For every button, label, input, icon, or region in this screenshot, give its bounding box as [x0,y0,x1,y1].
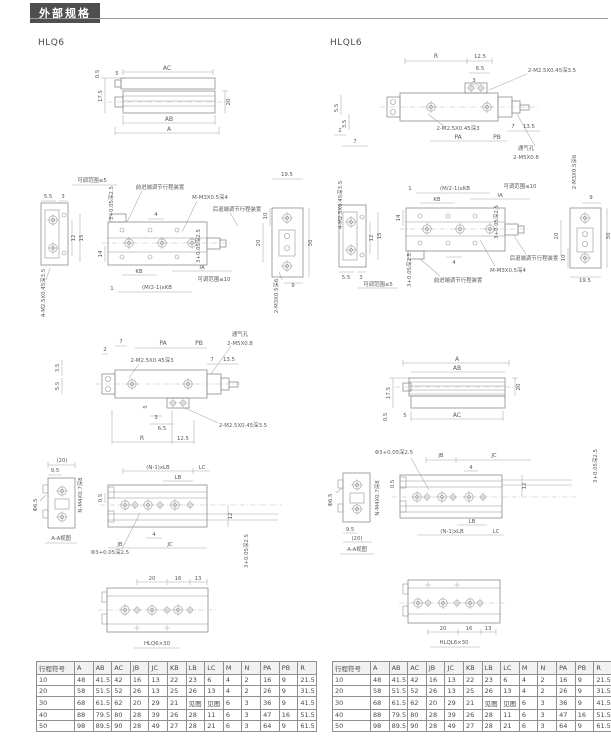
table-cell: 42 [408,675,427,686]
tolerance-label: 3+0.05深2.5 [194,229,202,263]
aa-view-linework [336,457,576,554]
vent-label: 通气孔 [518,144,535,152]
tolerance-label: 3+0.05深2.5 [405,253,413,287]
table-cell: 30 [37,697,75,710]
table-cell: 39 [149,710,168,721]
table-cell: 36 [261,697,280,710]
tolerance-label: 3+0.05深2.5 [492,205,500,239]
table-cell: 58 [75,686,94,697]
table-cell: 61.5 [594,721,611,732]
table-cell: 13 [445,686,464,697]
table-cell: 9 [279,686,298,697]
column-header: M [223,662,242,675]
fwd-adjuster-label: 前进端调节行程装置 [434,276,483,284]
table-cell: 64 [261,721,280,732]
table-cell: 28 [482,710,501,721]
table-cell: 20 [333,686,371,697]
dim-jb: JB [116,542,123,548]
table-cell: 11 [501,710,520,721]
table-cell: 52 [112,686,131,697]
table-cell: 13 [445,675,464,686]
table-cell: 28 [186,710,205,721]
table-cell: 21 [168,697,187,710]
view-caption: A-A视图 [347,545,367,553]
table-cell: 48 [75,675,94,686]
table-cell: 20 [37,686,75,697]
dim-15: 15 [79,235,85,242]
drawing-hlql6-plan-view: 4-M2.5X0.45深3.5 12 15 5.5 3 可调范围≤5 1 (M/… [330,180,610,315]
dim-20: 20 [149,576,156,582]
table-cell: 见图 [205,697,224,710]
table-cell: 13 [149,675,168,686]
dowel-callout: Φ3+0.05深2.5 [375,448,413,456]
table-cell: 61.5 [93,697,112,710]
table-cell: 41.5 [389,675,408,686]
dim-r: R [140,435,144,442]
table-cell: 2 [242,686,261,697]
dim-12-5: 12.5 [474,54,486,60]
column-header: AB [93,662,112,675]
table-cell: 48 [371,675,390,686]
dim-16: 16 [175,576,182,582]
header-rule [30,18,608,19]
dim-5-5: 5.5 [55,382,61,391]
dim-jc: JC [166,542,173,548]
table-cell: 89.5 [389,721,408,732]
dim-7: 7 [119,339,122,345]
dim-lb: LB [175,475,182,481]
dim-nlb: (N-1)xLB [440,529,464,535]
table-cell: 51.5 [298,710,317,721]
table-cell: 13 [205,686,224,697]
table-cell: 27 [168,721,187,732]
plan-view-linework [339,193,607,288]
table-cell: 88 [75,710,94,721]
column-header: R [298,662,317,675]
dim-mkb: (M/2-1)xKB [440,186,470,192]
table-row: 205851.55226132526134226931.5 [37,686,317,697]
table-cell: 9 [575,686,594,697]
table-cell: 28 [482,721,501,732]
dim-ia: IA [497,193,503,199]
table-cell: 23 [186,675,205,686]
dim-1: 1 [408,186,411,192]
table-cell: 26 [186,686,205,697]
table-cell: 11 [205,710,224,721]
table-cell: 2 [242,675,261,686]
dim-2: 2 [103,347,106,353]
table-cell: 23 [482,675,501,686]
column-header: LB [186,662,205,675]
detail-linework [399,580,508,647]
table-cell: 26 [168,710,187,721]
table-cell: 61.5 [298,721,317,732]
table-cell: 16 [426,675,445,686]
table-row: 306861.562202921见图见图6336941.5 [333,697,611,710]
dim-12: 12 [369,235,375,242]
dim-4: 4 [152,532,156,538]
dim-7: 7 [210,357,213,363]
dim-20: 20 [226,98,232,105]
table-cell: 49 [149,721,168,732]
thread-callout: 2-M3X0.5深6 [570,154,578,189]
detail-caption: HLQ6×30 [144,641,171,647]
thread-callout: 4-M2.5X0.45深3.5 [39,269,47,317]
adjust-range-10: 可调范围≤10 [198,275,232,283]
table-cell: 26 [557,686,576,697]
dim-7: 7 [511,124,514,130]
table-cell: 47 [557,710,576,721]
table-cell: 2 [538,675,557,686]
dim-13-5: 13.5 [523,124,535,130]
column-header: KB [168,662,187,675]
table-cell: 16 [575,710,594,721]
dim-19-5: 19.5 [281,172,293,178]
table-cell: 2 [538,686,557,697]
dim-12: 12 [522,483,528,490]
table-cell: 见图 [186,697,205,710]
column-header: LC [205,662,224,675]
table-cell: 40 [37,710,75,721]
table-cell: 27 [464,721,483,732]
table-row: 408879.580283926281163471651.5 [333,710,611,721]
table-cell: 28 [426,710,445,721]
table-cell: 6 [519,710,538,721]
dim-12-5: 12.5 [177,436,189,442]
dim-15: 15 [377,233,383,240]
column-header: A [75,662,94,675]
table-cell: 6 [519,721,538,732]
table-cell: 28 [130,721,149,732]
rear-adjuster-label: 后退端调节行程装置 [510,254,559,262]
dim-20p: (20) [56,458,67,464]
table-cell: 31.5 [298,686,317,697]
table-cell: 79.5 [93,710,112,721]
table-cell: 58 [371,686,390,697]
dim-0-5: 0.5 [390,480,396,489]
table-cell: 28 [426,721,445,732]
tolerance-label: 3+0.05深2.5 [591,449,599,483]
dim-30: 30 [308,239,314,246]
dim-17-5: 17.5 [386,387,392,399]
table-row: 205851.55226132526134226931.5 [333,686,611,697]
detail-linework [98,579,216,648]
table-cell: 6 [519,697,538,710]
dim-3: 3 [472,78,475,84]
dim-20p: (20) [351,536,362,542]
dim-4: 4 [154,212,158,218]
drawing-hlql6-aa-view: Φ3+0.05深2.5 JB JC 4 3+0.05深2.5 0.5 12 LB… [326,438,611,580]
dim-16: 16 [466,626,473,632]
detail-caption: HLQL6×30 [439,640,469,646]
table-cell: 3 [242,710,261,721]
table-cell: 9 [279,697,298,710]
drawing-hlq6-plan-view: 5.5 3 12 15 4-M2.5X0.45深3.5 可调范围≤5 前进端调节… [32,168,312,323]
dim-17-5: 17.5 [98,90,104,102]
thread-callout: 2-M2.5X0.45深3.5 [528,66,576,74]
thread-callout: 4-M2.5X0.45深3.5 [336,181,344,229]
table-row: 509889.59028492728216364961.5 [37,721,317,732]
dim-9: 9 [589,195,593,201]
table-cell: 28 [186,721,205,732]
table-cell: 13 [501,686,520,697]
table-cell: 20 [130,697,149,710]
adjust-range-5: 可调范围≤5 [77,176,107,184]
table-cell: 22 [168,675,187,686]
table-cell: 4 [519,686,538,697]
table-cell: 36 [557,697,576,710]
table-cell: 51.5 [389,686,408,697]
dim-nlb: (N-1)xLB [146,465,170,471]
column-header: JC [149,662,168,675]
dim-5-5: 5.5 [342,275,351,281]
dim-kb: KB [433,197,441,203]
thread-callout: 2-M2.5X0.45深3 [436,124,479,132]
dim-lb: LB [469,519,476,525]
dim-a: A [455,356,460,363]
table-cell: 62 [408,697,427,710]
column-header: N [242,662,261,675]
table-cell: 51.5 [594,710,611,721]
drawing-hlq6-side-view: AC 5 0.5 17.5 20 AB A [95,62,255,142]
table-cell: 6 [223,697,242,710]
table-cell: 25 [464,686,483,697]
table-cell: 80 [112,710,131,721]
adjust-range-5: 可调范围≤5 [363,280,393,288]
table-cell: 39 [445,710,464,721]
dim-4: 4 [452,260,456,266]
column-header: JB [130,662,149,675]
drawing-hlql6-front-view: R 12.5 6.5 3 2-M2.5X0.45深3.5 5.5 3.5 2 7… [330,46,608,171]
column-header: N [538,662,557,675]
dim-9-5: 9.5 [346,527,355,533]
dim-1: 1 [110,286,113,292]
dim-20: 20 [554,232,560,239]
table-cell: 4 [223,686,242,697]
table-cell: 50 [333,721,371,732]
drawing-hlq6x30-detail: 20 16 13 HLQ6×30 [90,572,255,654]
table-cell: 41.5 [594,697,611,710]
dimension-table-hlq6: 行程符号AABACJBJCKBLBLCMNPAPBR104841.5421613… [36,661,317,732]
table-cell: 22 [464,675,483,686]
table-cell: 47 [261,710,280,721]
column-header: LB [482,662,501,675]
table-cell: 40 [333,710,371,721]
dim-ia: IA [199,265,205,271]
dim-10: 10 [263,212,269,219]
fwd-adjuster-label: 前进端调节行程装置 [136,183,185,191]
dim-0-5: 0.5 [98,494,104,503]
dim-6-5: 6.5 [158,426,167,432]
dim-mkb: (M/2-1)xKB [142,285,172,291]
table-cell: 9 [575,721,594,732]
dim-7: 7 [353,139,356,145]
dim-pb: PB [493,134,501,141]
column-header: PA [557,662,576,675]
table-cell: 26 [426,686,445,697]
table-cell: 9 [279,675,298,686]
table-cell: 28 [130,710,149,721]
dim-14: 14 [98,250,104,257]
table-cell: 79.5 [389,710,408,721]
model-label-hlq6: HLQ6 [38,38,65,48]
table-cell: 50 [37,721,75,732]
dim-13: 13 [195,576,202,582]
column-header: 行程符号 [333,662,371,675]
dim-6-5: 6.5 [476,66,485,72]
table-cell: 9 [279,721,298,732]
table-cell: 98 [371,721,390,732]
table-cell: 3 [242,721,261,732]
table-cell: 6 [223,710,242,721]
thread-callout: N-M4X0.7深8 [76,477,84,513]
column-header: JB [426,662,445,675]
table-cell: 52 [408,686,427,697]
dim-13-5: 13.5 [223,357,235,363]
rear-adjuster-label: 后退端调节行程装置 [213,205,262,213]
table-cell: 89.5 [93,721,112,732]
column-header: LC [501,662,520,675]
table-cell: 80 [408,710,427,721]
thread-callout: M-M3X0.5深4 [192,193,228,201]
table-cell: 90 [112,721,131,732]
dim-3-5: 3.5 [342,120,348,129]
dim-5: 5 [115,71,118,77]
dim-10: 10 [561,254,567,261]
drawing-hlq6-aa-view: (20) 9.5 Φ6.5 N-M4X0.7深8 A-A视图 Φ3+0.05深2… [32,443,312,583]
table-cell: 26 [261,686,280,697]
table-row: 408879.580283926281163471651.5 [37,710,317,721]
dim-5: 5 [143,405,149,408]
table-cell: 3 [538,721,557,732]
dim-5: 5 [403,413,406,419]
table-cell: 26 [482,686,501,697]
adjust-range-10: 可调范围≤10 [504,182,538,190]
dim-0-5: 0.5 [95,70,101,79]
dim-ac: AC [453,412,461,419]
view-caption: A-A视图 [51,534,71,542]
dim-pa: PA [454,134,462,141]
dim-ab: AB [165,116,173,123]
column-header: PA [261,662,280,675]
dim-lc: LC [493,529,500,535]
column-header: AB [389,662,408,675]
table-cell: 29 [149,697,168,710]
dim-3: 3 [61,194,64,200]
dim-5-5: 5.5 [44,194,53,200]
dowel-callout: Φ3+0.05深2.5 [91,548,129,556]
dim-5-5: 5.5 [334,104,340,113]
table-cell: 98 [75,721,94,732]
dim-pb: PB [195,340,203,347]
dim-9-5: 9.5 [51,468,60,474]
dim-2: 2 [338,128,341,134]
table-cell: 41.5 [298,697,317,710]
table-cell: 4 [223,675,242,686]
table-row: 104841.5421613222364216921.5 [333,675,611,686]
table-cell: 21 [501,721,520,732]
column-header: AC [408,662,427,675]
tolerance-label: 3+0.05深2.5 [107,186,115,220]
table-cell: 25 [168,686,187,697]
dim-20: 20 [440,626,447,632]
dim-jb: JB [437,453,444,459]
table-cell: 68 [371,697,390,710]
table-cell: 见图 [501,697,520,710]
dim-0-5: 0.5 [383,413,389,422]
dimension-table-hlql6: 行程符号AABACJBJCKBLBLCMNPAPBR104841.5421613… [332,661,611,732]
column-header: M [519,662,538,675]
table-cell: 29 [445,697,464,710]
dim-20: 20 [256,239,262,246]
dim-3: 3 [359,275,362,281]
column-header: JC [445,662,464,675]
dim-kb: KB [135,269,143,275]
table-cell: 42 [112,675,131,686]
table-cell: 88 [371,710,390,721]
column-header: A [371,662,390,675]
dim-13: 13 [485,626,492,632]
vent-label: 通气孔 [232,330,249,338]
dim-12: 12 [71,235,77,242]
table-cell: 6 [223,721,242,732]
dim-lc: LC [199,465,206,471]
table-cell: 10 [37,675,75,686]
dim-14: 14 [396,214,402,221]
table-cell: 9 [575,675,594,686]
table-cell: 31.5 [594,686,611,697]
table-cell: 21 [205,721,224,732]
thread-callout: 2-M5X0.8 [227,341,253,347]
table-cell: 3 [538,697,557,710]
table-cell: 4 [519,675,538,686]
table-cell: 21.5 [594,675,611,686]
table-cell: 16 [130,675,149,686]
table-cell: 9 [575,697,594,710]
dim-4: 4 [469,465,473,471]
table-cell: 16 [261,675,280,686]
dim-pa: PA [159,340,167,347]
thread-callout: 2-M2.5X0.45深3 [130,356,173,364]
table-cell: 26 [464,710,483,721]
dim-phi-6-5: Φ6.5 [328,494,334,507]
dim-ab: AB [453,365,461,372]
table-cell: 21.5 [298,675,317,686]
table-cell: 26 [130,686,149,697]
table-cell: 16 [557,675,576,686]
page-title: 外部规格 [30,3,100,23]
dim-a: A [167,126,172,133]
front-view-linework [334,58,540,146]
column-header: AC [112,662,131,675]
dim-jc: JC [490,453,497,459]
thread-callout: N-M4X0.7深8 [373,480,381,516]
table-cell: 49 [445,721,464,732]
thread-callout: 2-M2.5X0.45深3.5 [219,421,267,429]
thread-callout: M-M3X0.5深4 [490,266,526,274]
table-row: 509889.59028492728216364961.5 [333,721,611,732]
table-cell: 6 [205,675,224,686]
table-cell: 3 [242,697,261,710]
dim-19-5: 19.5 [579,278,591,284]
table-cell: 13 [149,686,168,697]
column-header: KB [464,662,483,675]
drawing-hlql6x30-detail: 20 16 13 HLQL6×30 [396,566,571,656]
dim-12: 12 [228,513,234,520]
dim-20: 20 [516,383,522,390]
table-cell: 68 [75,697,94,710]
column-header: 行程符号 [37,662,75,675]
